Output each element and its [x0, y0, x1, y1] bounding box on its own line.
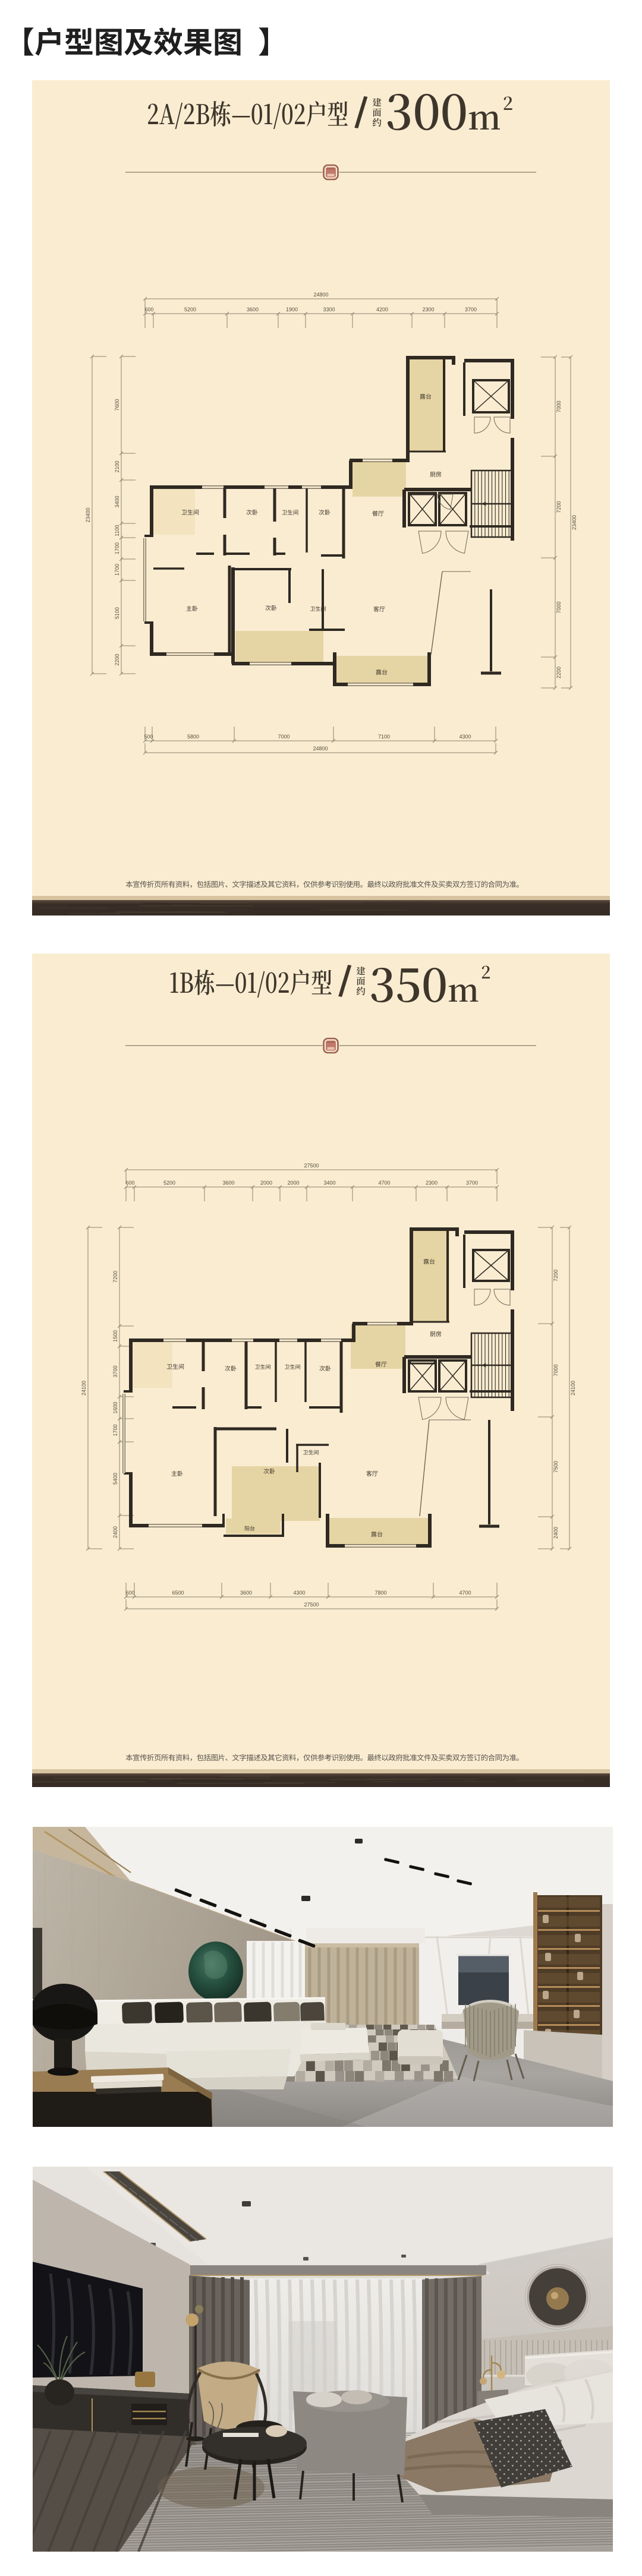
svg-text:7000: 7000	[556, 601, 562, 613]
svg-text:7500: 7500	[553, 1461, 559, 1473]
svg-text:2000: 2000	[260, 1180, 272, 1186]
svg-text:600: 600	[125, 1590, 134, 1596]
svg-text:27500: 27500	[304, 1163, 319, 1169]
svg-text:7000: 7000	[556, 400, 562, 412]
svg-text:5200: 5200	[184, 307, 196, 312]
svg-text:1600: 1600	[112, 1401, 118, 1413]
svg-text:600: 600	[125, 1180, 134, 1186]
svg-text:5100: 5100	[114, 607, 120, 619]
svg-text:7200: 7200	[112, 1271, 118, 1283]
svg-text:1700: 1700	[114, 542, 120, 554]
svg-text:7800: 7800	[374, 1590, 386, 1596]
svg-text:5800: 5800	[187, 734, 199, 740]
svg-text:4700: 4700	[459, 1590, 471, 1596]
svg-text:1500: 1500	[112, 1330, 118, 1342]
svg-text:3300: 3300	[323, 307, 335, 312]
svg-text:7100: 7100	[378, 734, 390, 740]
svg-text:1700: 1700	[112, 1424, 118, 1436]
svg-text:3700: 3700	[112, 1365, 118, 1377]
svg-text:2400: 2400	[553, 1527, 559, 1539]
svg-text:1900: 1900	[286, 307, 298, 312]
svg-text:500: 500	[144, 734, 153, 740]
svg-text:2300: 2300	[422, 307, 434, 312]
svg-text:4300: 4300	[459, 734, 471, 740]
svg-text:7200: 7200	[556, 501, 562, 513]
svg-text:23400: 23400	[571, 515, 577, 530]
svg-text:6500: 6500	[172, 1590, 184, 1596]
svg-text:4200: 4200	[376, 307, 388, 312]
svg-text:600: 600	[144, 307, 153, 312]
svg-text:3600: 3600	[240, 1590, 252, 1596]
svg-text:4300: 4300	[293, 1590, 305, 1596]
svg-text:24800: 24800	[313, 292, 328, 298]
svg-text:2300: 2300	[426, 1180, 438, 1186]
svg-text:24800: 24800	[313, 746, 328, 752]
svg-text:3600: 3600	[247, 307, 259, 312]
svg-text:7000: 7000	[553, 1364, 559, 1376]
svg-text:5400: 5400	[112, 1473, 118, 1485]
svg-text:27500: 27500	[304, 1602, 319, 1608]
svg-text:23400: 23400	[85, 507, 91, 522]
svg-text:7000: 7000	[278, 734, 289, 740]
svg-text:3700: 3700	[465, 307, 477, 312]
svg-text:4700: 4700	[378, 1180, 390, 1186]
svg-text:3700: 3700	[466, 1180, 478, 1186]
svg-text:2200: 2200	[114, 654, 120, 665]
svg-text:2200: 2200	[556, 667, 562, 678]
svg-text:24100: 24100	[81, 1381, 87, 1396]
svg-text:7200: 7200	[553, 1270, 559, 1281]
svg-text:5200: 5200	[163, 1180, 175, 1186]
svg-text:1700: 1700	[114, 564, 120, 576]
svg-text:3600: 3600	[222, 1180, 234, 1186]
svg-text:2000: 2000	[287, 1180, 299, 1186]
svg-text:24100: 24100	[570, 1381, 576, 1396]
svg-text:3400: 3400	[114, 495, 120, 507]
svg-text:1100: 1100	[114, 525, 120, 536]
svg-text:2400: 2400	[112, 1526, 118, 1538]
svg-text:2100: 2100	[114, 460, 120, 472]
svg-text:7600: 7600	[114, 399, 120, 411]
svg-text:3400: 3400	[323, 1180, 335, 1186]
